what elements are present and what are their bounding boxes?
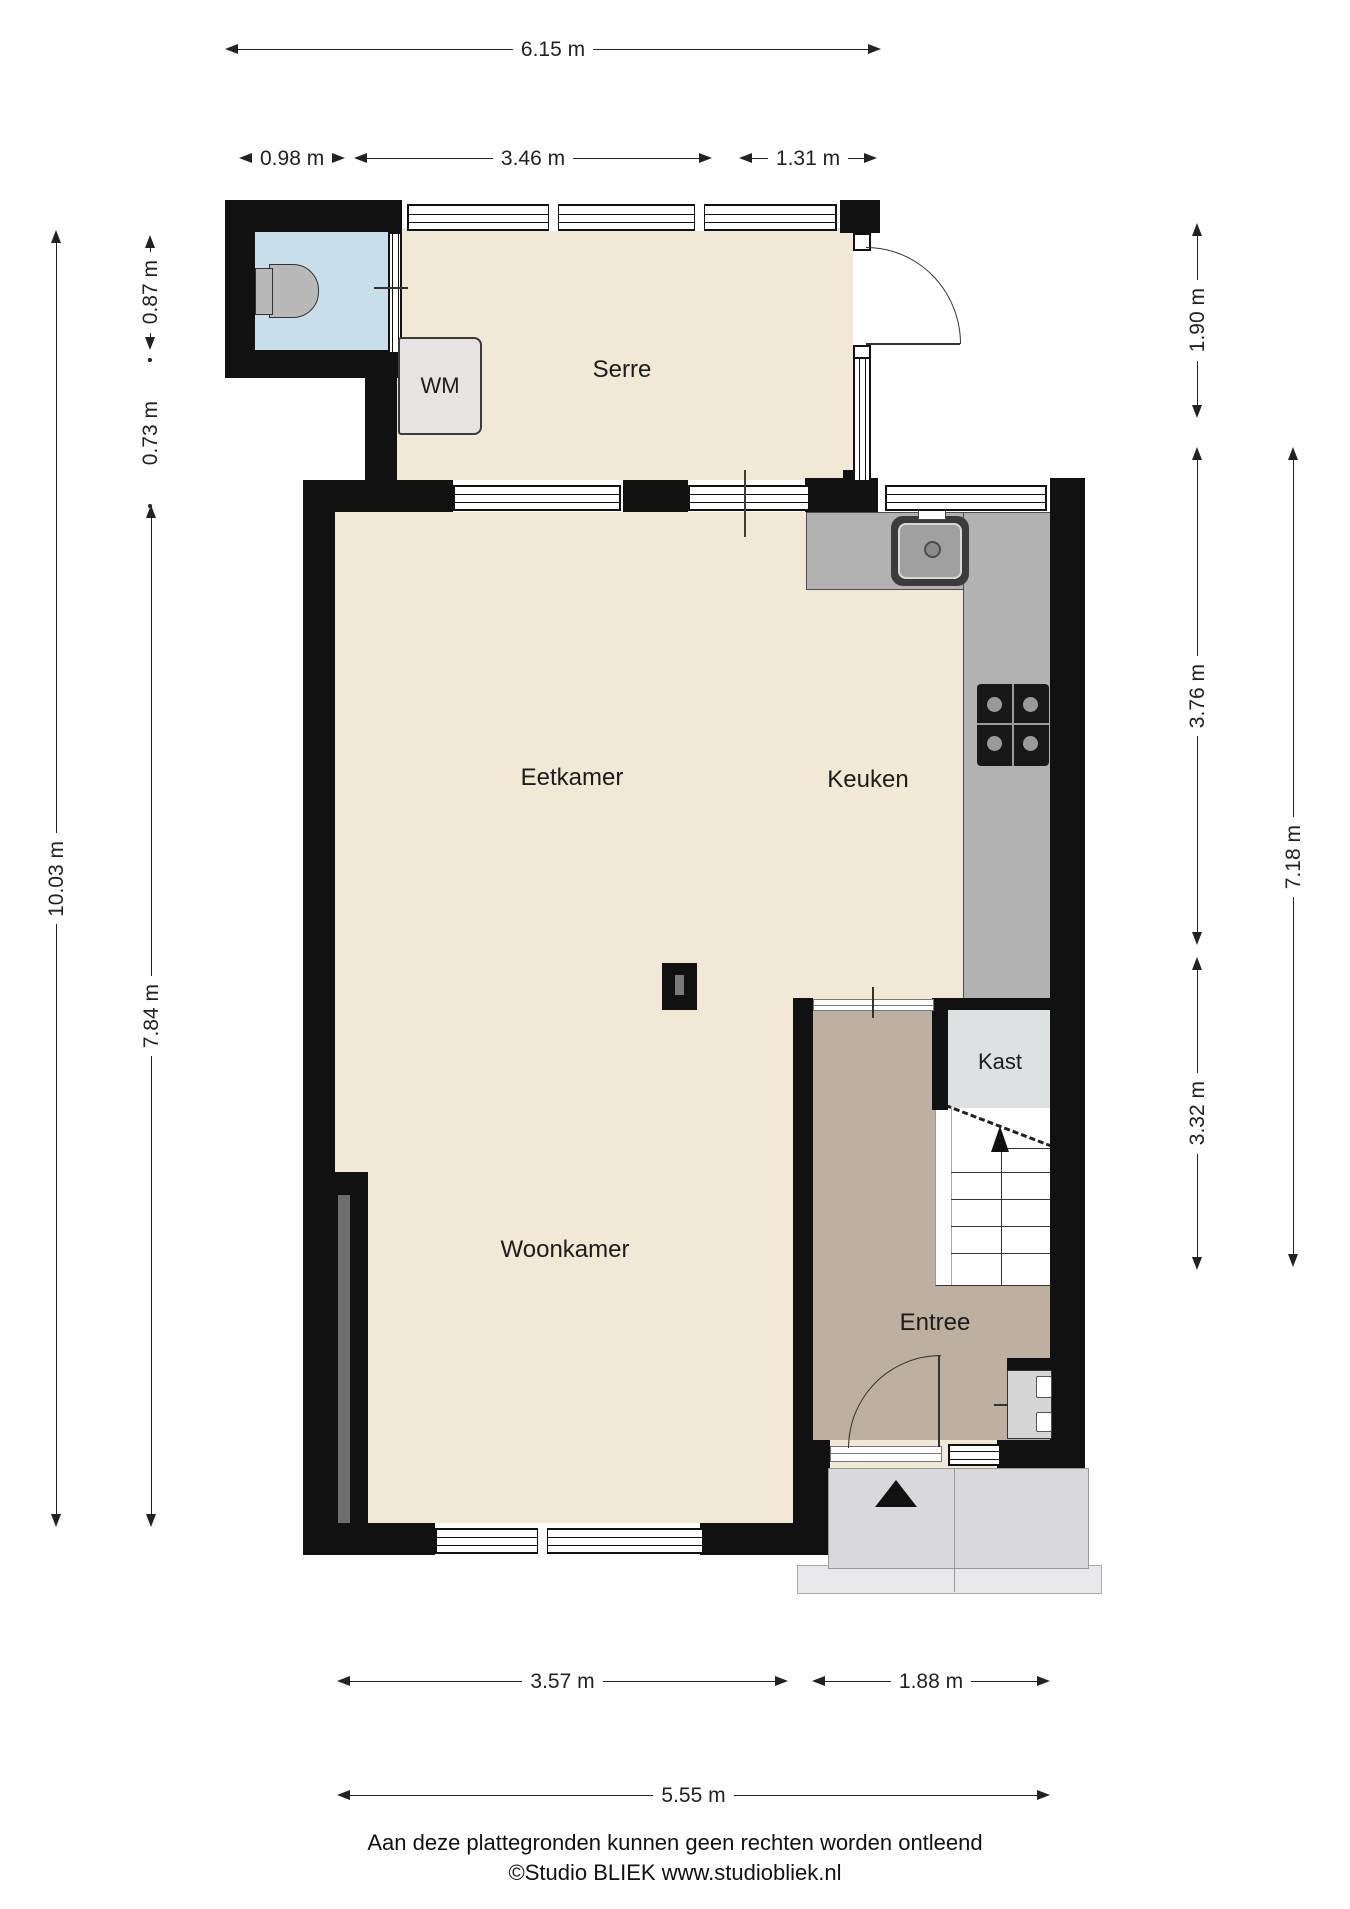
wall-kitchen-corner	[805, 478, 878, 512]
window-mullion	[548, 204, 559, 231]
footer-disclaimer: Aan deze plattegronden kunnen geen recht…	[0, 1830, 1350, 1856]
stove-burner	[1023, 697, 1038, 712]
meter-unit	[1036, 1412, 1052, 1432]
dim-top-right: 1.31 m	[739, 147, 877, 169]
stove-grid-v	[1012, 684, 1014, 766]
front-door-threshold	[830, 1446, 942, 1462]
stair-tread	[951, 1172, 1051, 1173]
wall-bottom-mid	[700, 1523, 797, 1555]
dim-left-gap: 0.73 m	[139, 358, 161, 508]
meter-unit	[1036, 1376, 1052, 1398]
stair-tread	[951, 1226, 1051, 1227]
toilet-door-tick	[374, 287, 408, 289]
footer-credit: ©Studio BLIEK www.studiobliek.nl	[0, 1860, 1350, 1886]
dim-left-toilet: 0.87 m	[139, 235, 161, 350]
room-label-serre: Serre	[593, 356, 652, 384]
dim-right-entree: 3.32 m	[1186, 957, 1208, 1270]
dim-top-left: 0.98 m	[239, 147, 344, 169]
woonkamer-window	[435, 1528, 704, 1554]
hall-passage-tick	[872, 987, 874, 1018]
entrance-step	[828, 1468, 1089, 1569]
dim-right-serre: 1.90 m	[1186, 223, 1208, 418]
stair-divider	[1001, 1148, 1002, 1285]
entrance-step-lower	[797, 1565, 1102, 1594]
step-divider	[954, 1468, 955, 1592]
wall-toilet-top	[225, 200, 402, 232]
room-label-entree: Entree	[900, 1309, 971, 1337]
wall-front-right	[997, 1440, 1057, 1468]
wall-kast-left	[932, 1010, 948, 1110]
stair-tread	[951, 1253, 1051, 1254]
wall-top-mid	[623, 480, 688, 512]
washing-machine: WM	[398, 337, 482, 435]
room-label-eetkamer: Eetkamer	[521, 764, 624, 792]
floorplan-canvas: WM Serre Eetkamer Keuken Woonkamer Kast …	[0, 0, 1350, 1909]
wall-entree-corner	[793, 1440, 830, 1555]
entree-sidelight-window	[948, 1444, 1001, 1466]
wall-serre-left	[365, 378, 397, 480]
wall-left	[303, 480, 335, 1555]
wall-toilet-bottom	[225, 350, 402, 378]
stove-burner	[987, 697, 1002, 712]
serre-glass-wall	[853, 357, 871, 482]
sink-faucet	[918, 510, 946, 520]
serre-passage-tick	[744, 470, 746, 537]
keuken-window	[885, 485, 1047, 511]
eetkamer-window-left	[453, 485, 621, 511]
room-label-woonkamer: Woonkamer	[501, 1236, 630, 1264]
dim-top-total: 6.15 m	[225, 38, 881, 60]
wall-serre-pillar	[840, 200, 880, 233]
window-mullion	[537, 1528, 548, 1554]
sink-drain	[924, 541, 941, 558]
dim-top-mid: 3.46 m	[354, 147, 712, 169]
stair-tread	[951, 1199, 1051, 1200]
serre-door-arc	[866, 247, 961, 344]
stove-icon	[977, 684, 1049, 766]
toilet-icon	[269, 264, 319, 318]
toilet-tank	[255, 268, 273, 315]
dim-bottom-left: 3.57 m	[337, 1670, 788, 1692]
entrance-arrow-icon	[875, 1480, 917, 1507]
wall-hall-left	[793, 998, 813, 1440]
wall-keuken-hall	[932, 998, 1053, 1010]
serre-top-window	[407, 204, 837, 231]
room-label-kast: Kast	[978, 1049, 1022, 1075]
room-label-keuken: Keuken	[827, 766, 908, 794]
dim-right-outer: 7.18 m	[1282, 447, 1304, 1267]
stair-stringer	[951, 1108, 952, 1285]
stove-burner	[987, 736, 1002, 751]
radiator-icon	[338, 1195, 350, 1523]
washing-machine-label: WM	[420, 373, 459, 399]
pier-duct	[675, 975, 684, 995]
stair-up-arrow-icon	[991, 1126, 1009, 1152]
dim-bottom-total: 5.55 m	[337, 1784, 1050, 1806]
eetkamer-window-right	[688, 485, 810, 511]
wall-toilet-left	[225, 232, 255, 350]
window-mullion	[694, 204, 705, 231]
dim-left-inner: 7.84 m	[140, 505, 162, 1527]
toilet-door	[388, 232, 402, 354]
dim-left-outer: 10.03 m	[45, 230, 67, 1527]
dim-right-keuken: 3.76 m	[1186, 447, 1208, 945]
wall-right	[1050, 478, 1085, 1553]
dim-bottom-right: 1.88 m	[812, 1670, 1050, 1692]
wall-bottom-left	[303, 1523, 435, 1555]
wall-meter-top	[1007, 1358, 1053, 1370]
stove-burner	[1023, 736, 1038, 751]
